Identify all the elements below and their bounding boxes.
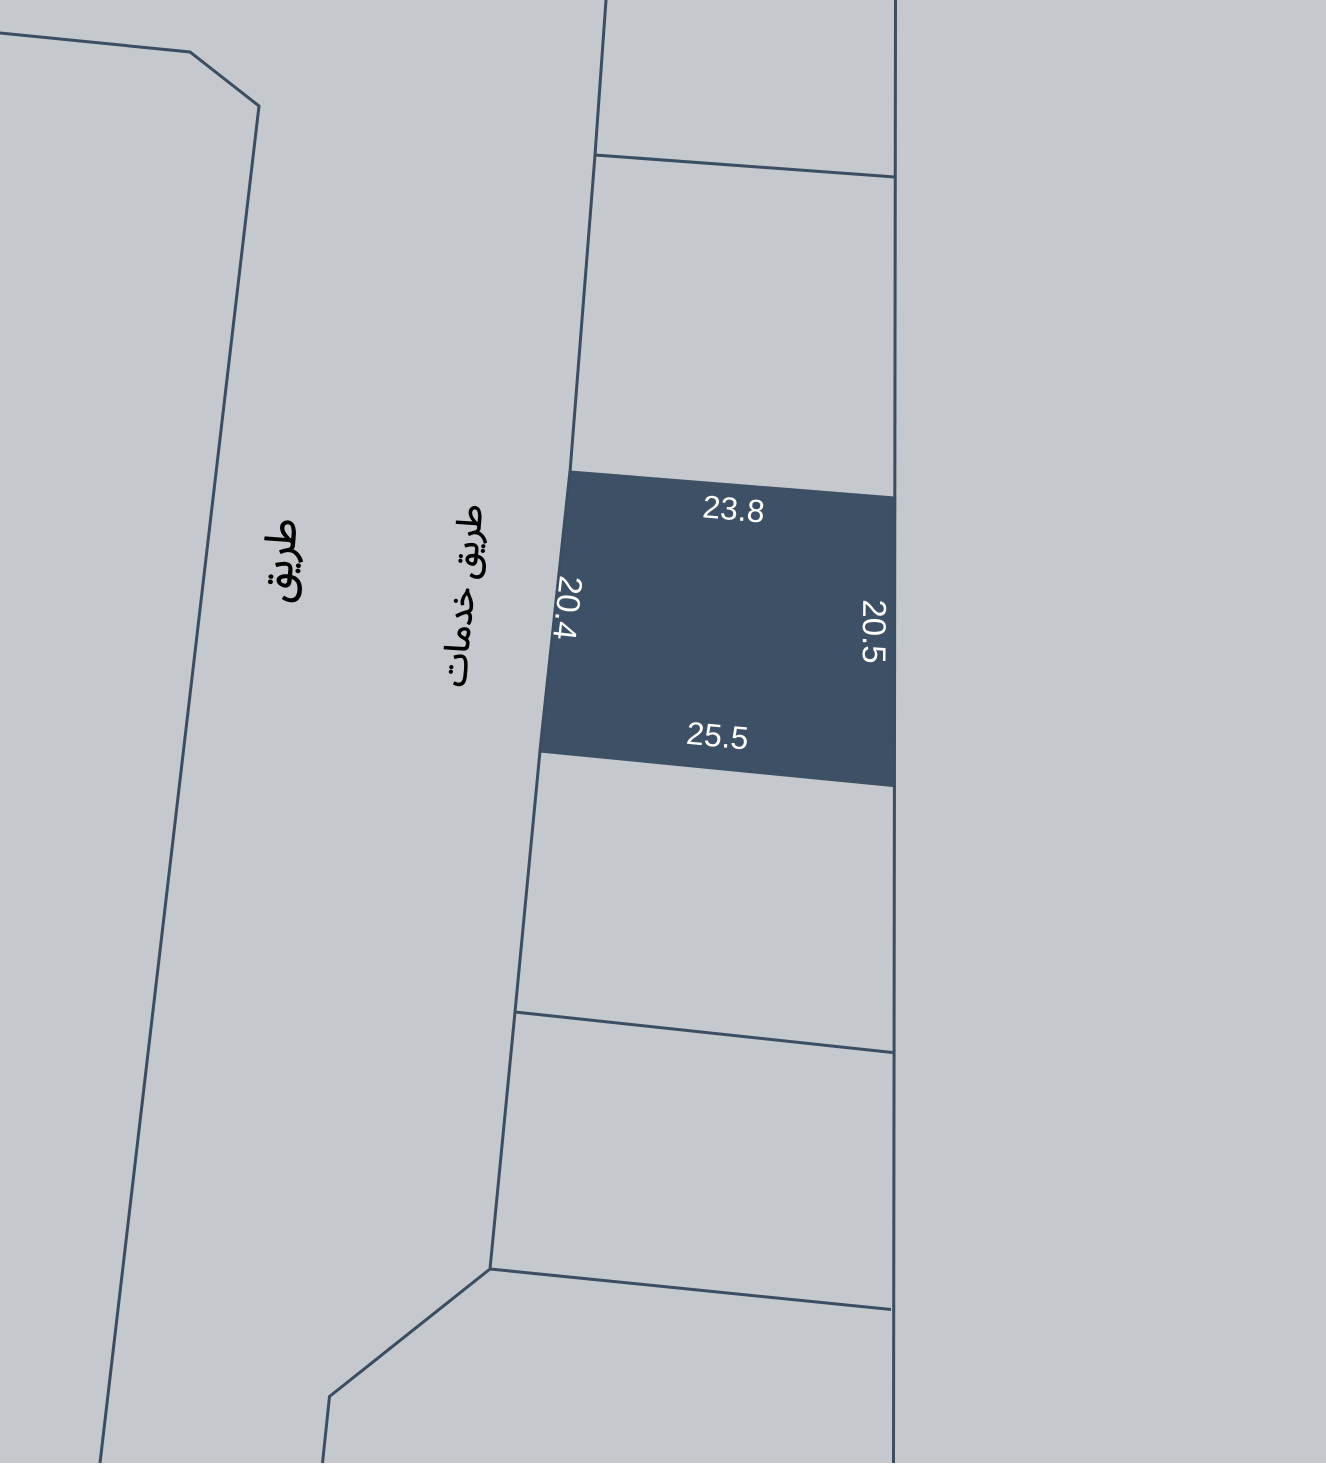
svg-text:25.5: 25.5 <box>685 715 750 757</box>
svg-text:20.4: 20.4 <box>546 574 590 642</box>
svg-text:20.5: 20.5 <box>856 599 894 664</box>
svg-text:23.8: 23.8 <box>701 488 766 529</box>
